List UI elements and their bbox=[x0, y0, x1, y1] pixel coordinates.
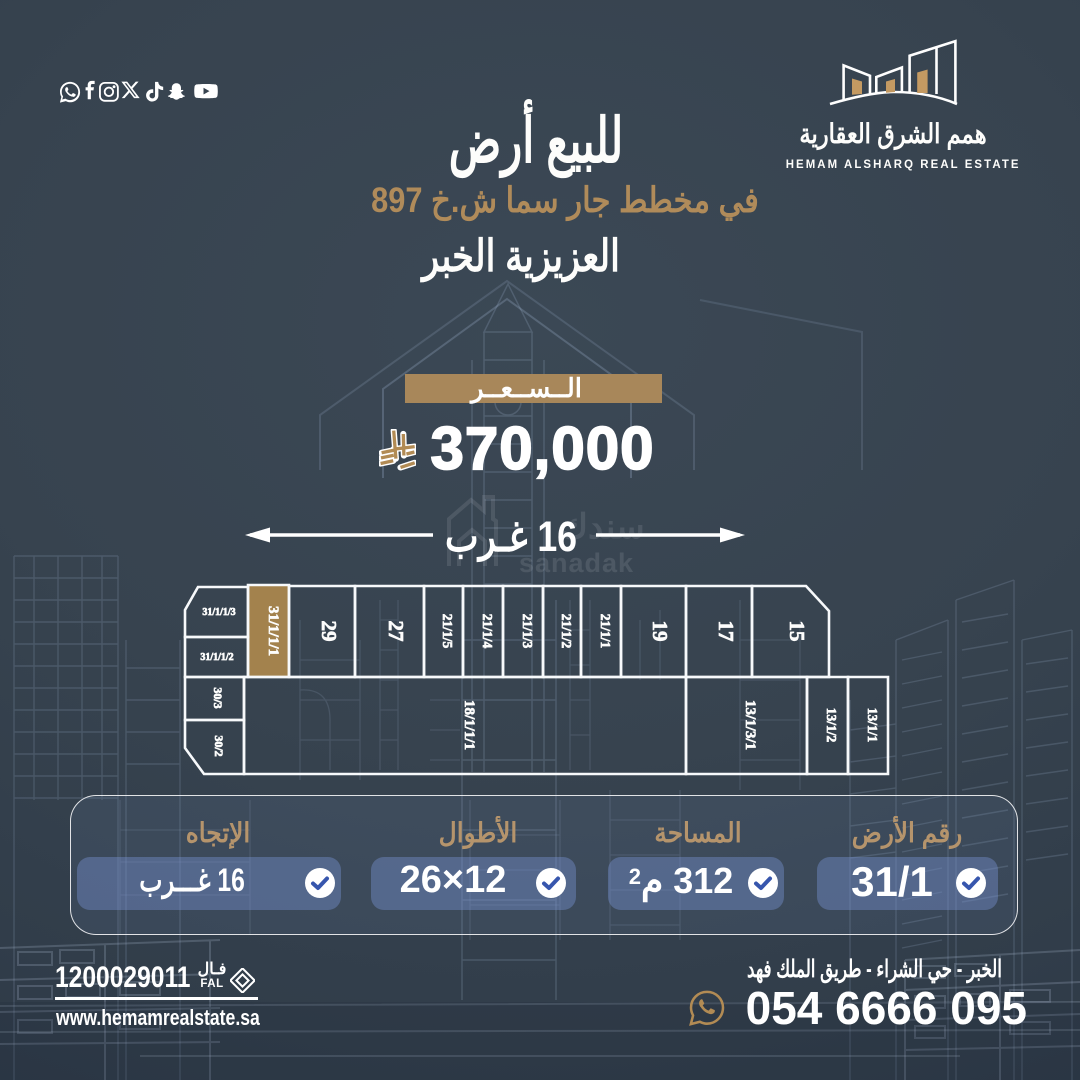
svg-text:17: 17 bbox=[714, 621, 738, 642]
svg-text:21/1/1: 21/1/1 bbox=[598, 614, 613, 649]
svg-text:29: 29 bbox=[317, 621, 341, 642]
svg-text:31/1/1/1: 31/1/1/1 bbox=[265, 606, 281, 656]
svg-text:21/1/3: 21/1/3 bbox=[520, 614, 535, 649]
svg-text:18/1/1/1: 18/1/1/1 bbox=[461, 700, 477, 750]
svg-text:27: 27 bbox=[384, 621, 408, 642]
svg-text:31/1/1/3: 31/1/1/3 bbox=[202, 607, 235, 618]
svg-text:15: 15 bbox=[785, 621, 809, 642]
svg-text:13/1/1: 13/1/1 bbox=[865, 708, 880, 743]
svg-text:30/2: 30/2 bbox=[212, 735, 226, 756]
svg-text:13/1/2: 13/1/2 bbox=[824, 708, 839, 743]
svg-text:21/1/4: 21/1/4 bbox=[480, 614, 495, 649]
svg-text:30/3: 30/3 bbox=[211, 687, 225, 708]
svg-text:19: 19 bbox=[648, 621, 672, 642]
svg-text:21/1/5: 21/1/5 bbox=[440, 614, 455, 649]
svg-text:13/1/3/1: 13/1/3/1 bbox=[742, 700, 758, 750]
svg-text:31/1/1/2: 31/1/1/2 bbox=[200, 652, 233, 663]
svg-text:21/1/2: 21/1/2 bbox=[559, 614, 574, 649]
